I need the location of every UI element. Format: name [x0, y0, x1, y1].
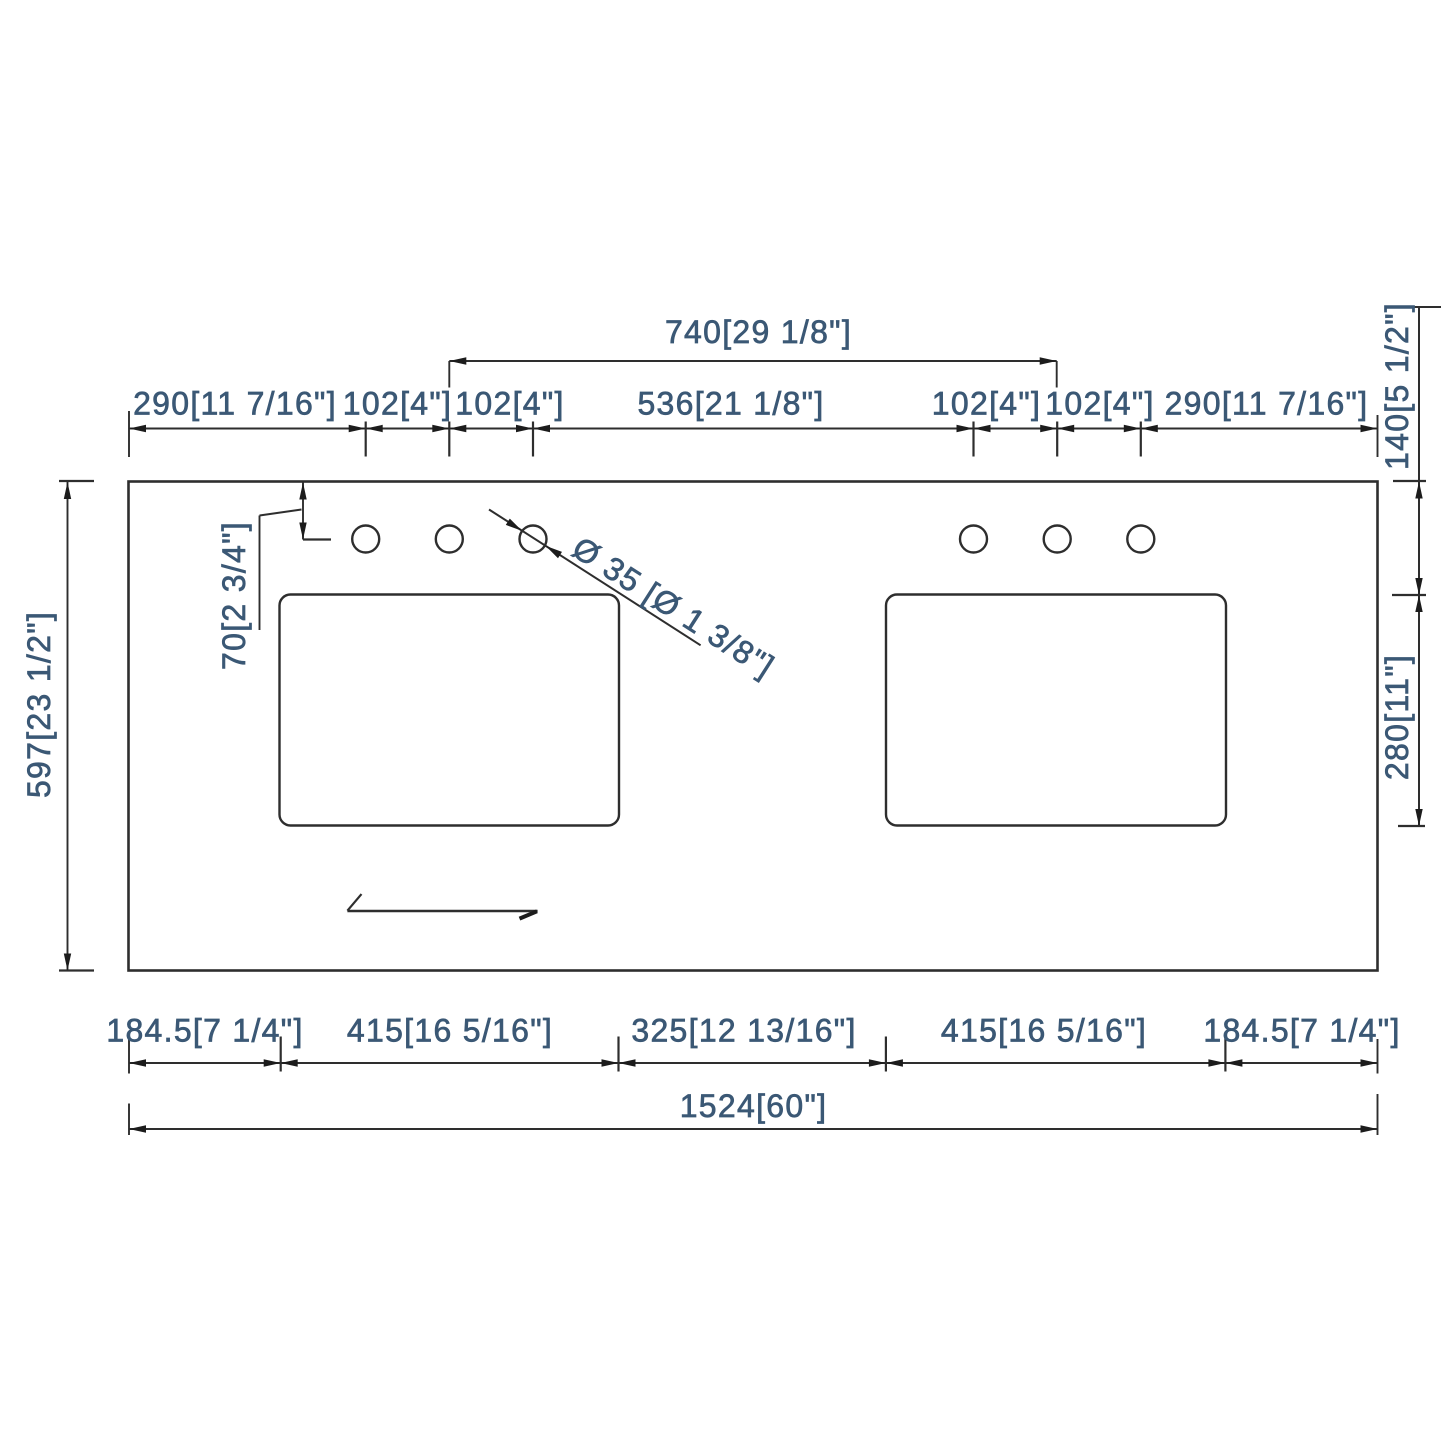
- svg-text:536[21 1/8"]: 536[21 1/8"]: [637, 386, 824, 422]
- svg-text:184.5[7 1/4"]: 184.5[7 1/4"]: [1203, 1013, 1400, 1049]
- svg-text:102[4"]: 102[4"]: [343, 386, 452, 422]
- svg-text:102[4"]: 102[4"]: [455, 386, 564, 422]
- svg-text:325[12 13/16"]: 325[12 13/16"]: [631, 1013, 856, 1049]
- svg-text:102[4"]: 102[4"]: [1045, 386, 1154, 422]
- svg-text:740[29 1/8"]: 740[29 1/8"]: [665, 314, 852, 350]
- svg-text:290[11 7/16"]: 290[11 7/16"]: [1165, 386, 1369, 422]
- svg-text:290[11 7/16"]: 290[11 7/16"]: [133, 386, 337, 422]
- svg-text:280[11"]: 280[11"]: [1379, 654, 1415, 780]
- svg-text:102[4"]: 102[4"]: [932, 386, 1041, 422]
- svg-text:415[16 5/16"]: 415[16 5/16"]: [347, 1013, 553, 1049]
- svg-text:184.5[7 1/4"]: 184.5[7 1/4"]: [106, 1013, 303, 1049]
- svg-text:140[5 1/2"]: 140[5 1/2"]: [1379, 302, 1415, 470]
- svg-text:70[2 3/4"]: 70[2 3/4"]: [216, 521, 252, 670]
- svg-text:597[23 1/2"]: 597[23 1/2"]: [21, 611, 57, 798]
- svg-text:1524[60"]: 1524[60"]: [680, 1088, 828, 1124]
- svg-text:415[16 5/16"]: 415[16 5/16"]: [941, 1013, 1147, 1049]
